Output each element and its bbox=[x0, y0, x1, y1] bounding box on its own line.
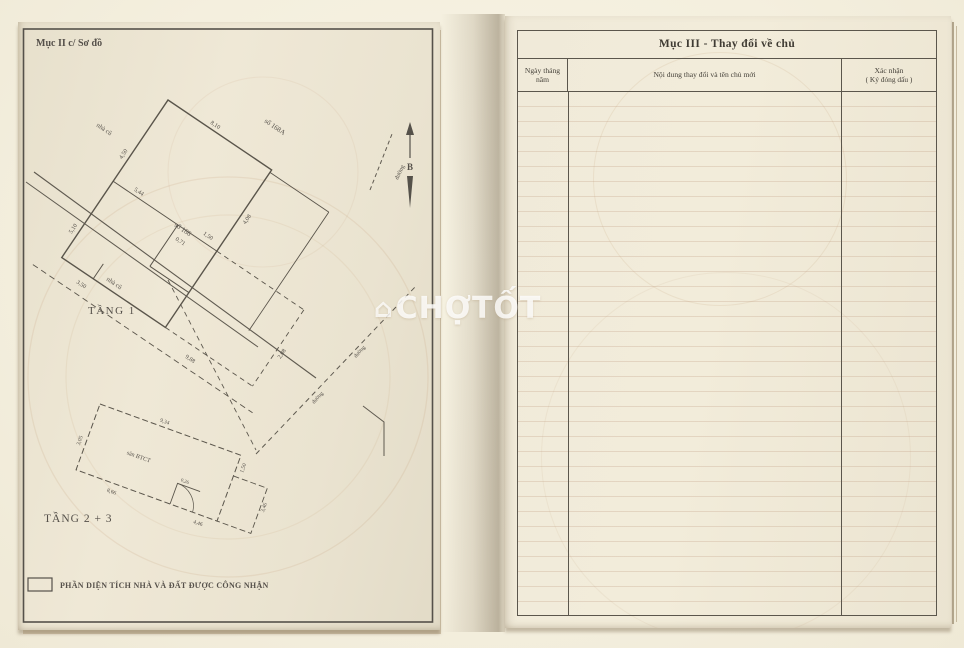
column-header-date: Ngày tháng năm bbox=[518, 59, 568, 91]
empty-cell-confirm bbox=[842, 92, 936, 615]
boundary-dashed-line bbox=[168, 280, 256, 450]
dimension-label: 3,46 bbox=[260, 502, 269, 513]
north-arrow-tail bbox=[407, 176, 413, 208]
neighbor-label-168A: số 168A bbox=[263, 117, 287, 137]
floor23-annex-outline bbox=[217, 476, 267, 533]
table-body-empty bbox=[518, 92, 936, 615]
legend-box bbox=[28, 578, 52, 591]
left-page-floorplan: Mục II c/ Sơ đồ đường đường đường B bbox=[18, 22, 440, 630]
floorplan-drawing: Mục II c/ Sơ đồ đường đường đường B bbox=[18, 22, 440, 630]
table-header-row: Ngày tháng năm Nội dung thay đổi và tên … bbox=[518, 59, 936, 92]
floor1-label: TẦNG 1 bbox=[88, 304, 136, 317]
dimension-label: 2,08 bbox=[277, 348, 288, 360]
floor23-label: TẦNG 2 + 3 bbox=[44, 510, 113, 525]
legend-text: PHẦN DIỆN TÍCH NHÀ VÀ ĐẤT ĐƯỢC CÔNG NHẬN bbox=[60, 580, 269, 590]
dimension-label: 1,50 bbox=[202, 231, 214, 242]
change-of-owner-table: Mục III - Thay đổi về chủ Ngày tháng năm… bbox=[517, 30, 937, 616]
section-header: Mục II c/ Sơ đồ bbox=[36, 38, 102, 49]
empty-cell-content bbox=[569, 92, 842, 615]
page-stack-edge bbox=[952, 22, 954, 624]
road-name-label: đường bbox=[353, 345, 367, 360]
boundary-dashed-line bbox=[33, 265, 253, 413]
area-label: sàn BTCT bbox=[126, 450, 152, 464]
north-arrow: B bbox=[406, 122, 414, 208]
floor23-outline bbox=[76, 404, 241, 521]
road-dashed-line bbox=[370, 134, 392, 190]
empty-cell-date bbox=[518, 92, 569, 615]
parcel-outline bbox=[62, 100, 272, 327]
right-page-table: Mục III - Thay đổi về chủ Ngày tháng năm… bbox=[505, 16, 951, 628]
scanned-document: Mục II c/ Sơ đồ đường đường đường B bbox=[0, 0, 964, 648]
table-title: Mục III - Thay đổi về chủ bbox=[518, 31, 936, 59]
dimension-label: 9,88 bbox=[184, 354, 196, 365]
confirm-line2: ( Ký đóng dấu ) bbox=[866, 75, 913, 84]
confirm-line1: Xác nhận bbox=[875, 66, 904, 75]
column-header-content: Nội dung thay đổi và tên chủ mới bbox=[568, 59, 842, 91]
old-house-label: nhà cũ bbox=[95, 122, 114, 138]
road-name-label: đường bbox=[394, 164, 406, 181]
dimension-label: 4,46 bbox=[192, 519, 203, 528]
house-icon: ⌂ bbox=[374, 294, 394, 324]
dimension-label: 9,34 bbox=[159, 418, 170, 427]
chotot-watermark: ⌂ CHỢTỐT bbox=[374, 291, 541, 326]
door-swing-arc bbox=[170, 483, 200, 512]
dimension-label: 1,50 bbox=[239, 462, 248, 473]
watermark-text: CHỢTỐT bbox=[396, 291, 542, 326]
floor1-plan: 8,10 4,50 5,10 5,44 0,71 1,50 4,08 9,88 … bbox=[33, 82, 376, 413]
dimension-label: 0,71 bbox=[174, 237, 186, 248]
road-line bbox=[26, 182, 258, 347]
paper-pattern-circle bbox=[168, 77, 358, 267]
interior-wall bbox=[93, 264, 103, 279]
dimension-label: 3,50 bbox=[75, 280, 87, 291]
page-stack-edge bbox=[956, 26, 957, 622]
road-name-label: đường bbox=[311, 391, 325, 406]
north-arrow-head bbox=[406, 122, 414, 135]
road-line bbox=[34, 172, 316, 378]
dimension-label: 8,66 bbox=[106, 488, 117, 497]
column-header-confirm: Xác nhận ( Ký đóng dấu ) bbox=[842, 59, 936, 91]
north-label: B bbox=[407, 162, 413, 172]
